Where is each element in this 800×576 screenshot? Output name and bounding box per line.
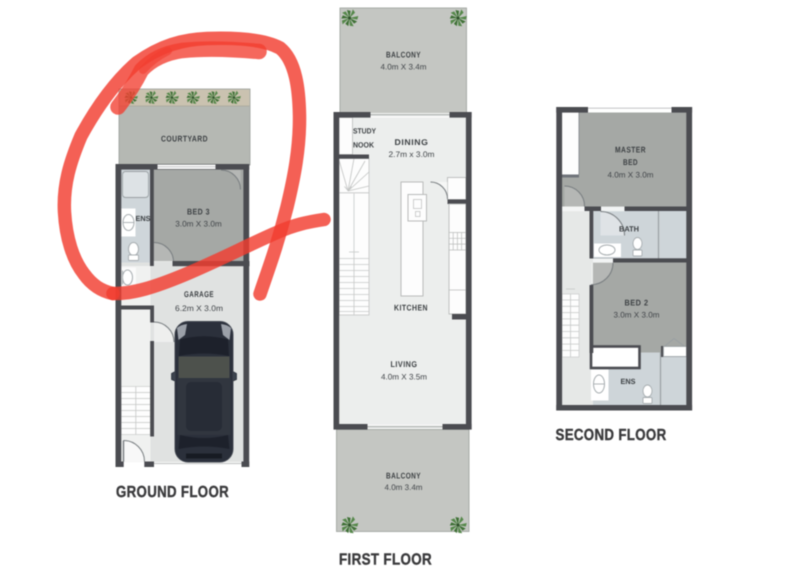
svg-text:ENS: ENS [136,214,151,223]
svg-text:GARAGE: GARAGE [184,289,214,299]
svg-text:3.0m X 3.0m: 3.0m X 3.0m [175,220,222,229]
svg-text:4.0m X 3.4m: 4.0m X 3.4m [381,63,427,72]
svg-text:4.0m X 3.0m: 4.0m X 3.0m [608,171,654,180]
svg-text:KITCHEN: KITCHEN [394,303,428,313]
svg-text:2.7m x 3.0m: 2.7m x 3.0m [389,150,435,159]
svg-text:STUDY: STUDY [353,127,376,136]
svg-text:BED 2: BED 2 [625,298,649,308]
svg-text:MASTER: MASTER [615,145,646,155]
svg-text:LIVING: LIVING [391,359,418,369]
svg-text:DINING: DINING [395,137,429,147]
svg-text:3.0m X 3.0m: 3.0m X 3.0m [614,311,660,320]
svg-text:BALCONY: BALCONY [386,50,421,60]
svg-text:4.0m 3.4m: 4.0m 3.4m [385,483,423,492]
svg-text:BED 3: BED 3 [187,207,210,217]
svg-text:SECOND FLOOR: SECOND FLOOR [556,427,667,444]
svg-text:4.0m X 3.5m: 4.0m X 3.5m [381,373,427,382]
svg-text:ENS: ENS [621,377,636,386]
svg-text:NOOK: NOOK [353,141,374,150]
svg-text:COURTYARD: COURTYARD [161,134,208,144]
svg-text:BATH: BATH [619,225,639,234]
svg-text:BED: BED [623,157,638,167]
svg-text:GROUND FLOOR: GROUND FLOOR [116,484,229,501]
svg-text:6.2m X 3.0m: 6.2m X 3.0m [175,304,223,313]
svg-text:BALCONY: BALCONY [386,471,421,481]
svg-text:FIRST FLOOR: FIRST FLOOR [339,552,432,569]
